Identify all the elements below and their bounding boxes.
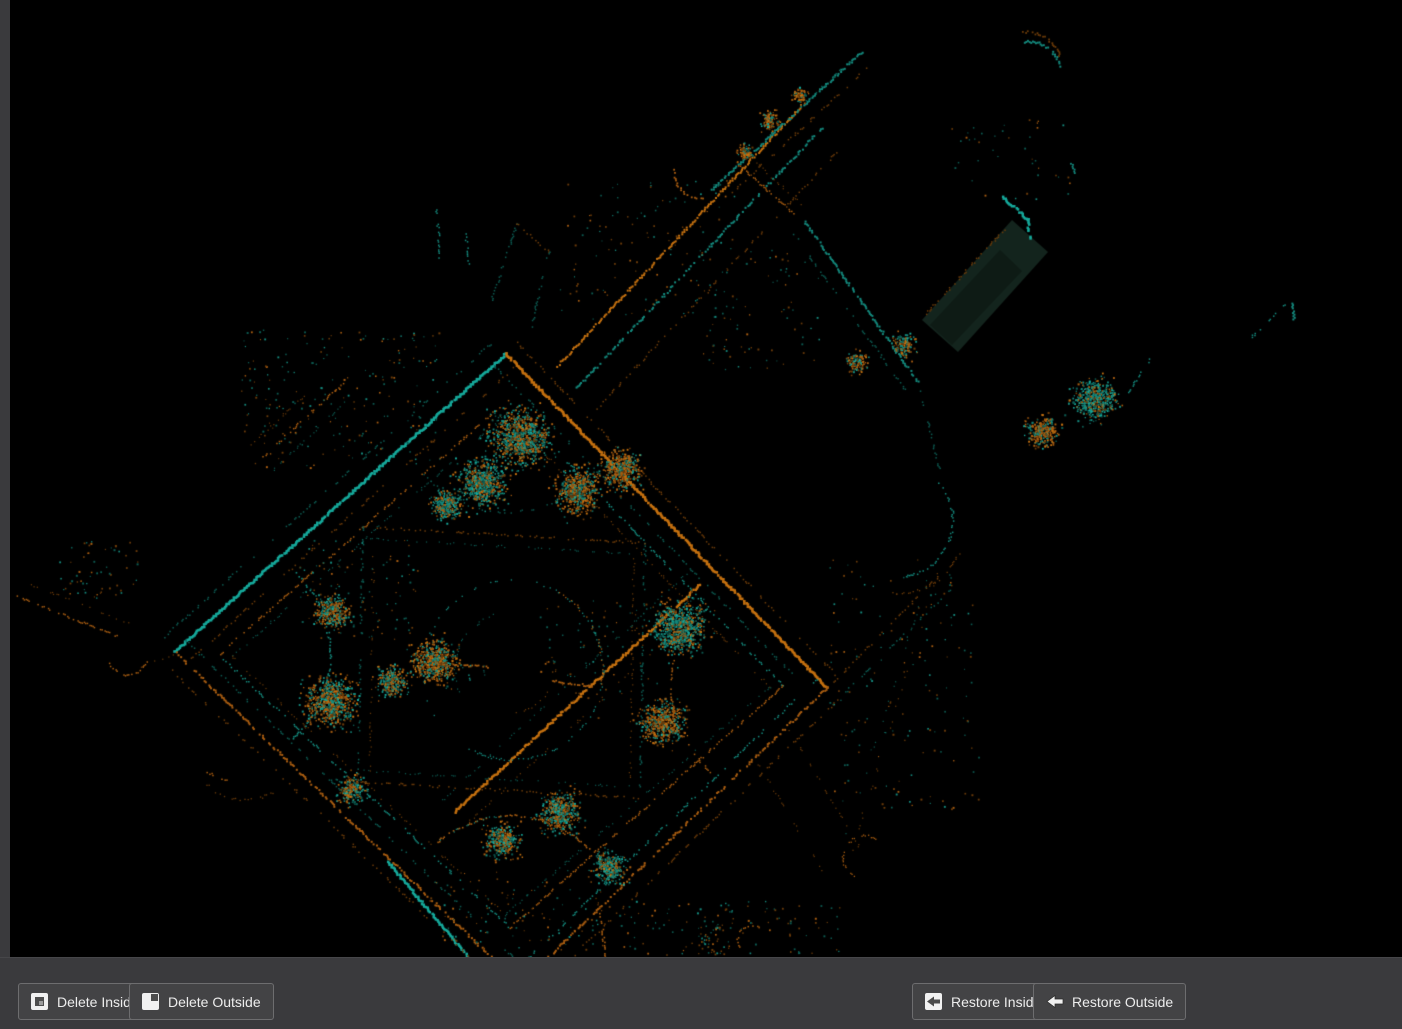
restore-outside-icon: [1046, 993, 1063, 1010]
window: { "frame": { "bg": "#3a3a3d", "viewport_…: [0, 0, 1402, 1029]
bottom-toolbar: Delete Inside Delete Outside Restore Ins…: [0, 957, 1402, 1029]
delete-inside-label: Delete Inside: [57, 994, 139, 1010]
restore-inside-label: Restore Inside: [951, 994, 1041, 1010]
delete-outside-icon: [142, 993, 159, 1010]
delete-outside-button[interactable]: Delete Outside: [129, 983, 274, 1020]
point-cloud-viewport[interactable]: [10, 0, 1402, 957]
restore-outside-label: Restore Outside: [1072, 994, 1173, 1010]
delete-outside-label: Delete Outside: [168, 994, 261, 1010]
delete-inside-icon: [31, 993, 48, 1010]
restore-inside-icon: [925, 993, 942, 1010]
restore-outside-button[interactable]: Restore Outside: [1033, 983, 1186, 1020]
